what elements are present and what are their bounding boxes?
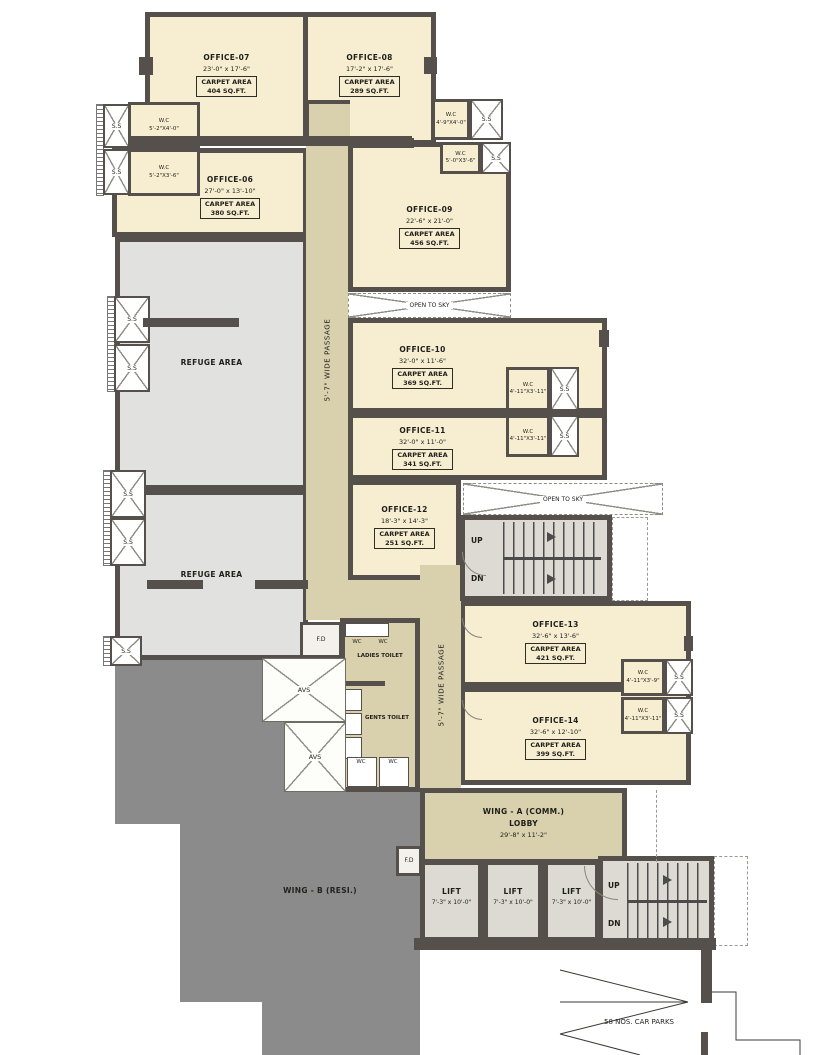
office-13-carpet: CARPET AREA421 SQ.FT.: [525, 643, 585, 665]
office-14-carpet: CARPET AREA399 SQ.FT.: [525, 739, 585, 761]
lift-1: LIFT 7'-3" x 10'-0": [420, 860, 483, 942]
office-11-dims: 32'-0" x 11'-0": [399, 438, 446, 447]
avs-box-2-label: AVS: [307, 753, 324, 761]
office-06-dims: 27'-0" x 13'-10": [204, 187, 255, 196]
open-to-sky-1: OPEN TO SKY: [348, 293, 511, 318]
office-10-name: OFFICE-10: [399, 345, 445, 355]
office-13-name: OFFICE-13: [532, 620, 578, 630]
toilet-block: WC WC LADIES TOILET GENTS TOILET WC WC: [340, 618, 420, 792]
office-12-dims: 18'-3" x 14'-3": [381, 517, 428, 526]
lift-3-dims: 7'-3" x 10'-0": [552, 899, 592, 907]
lift-2: LIFT 7'-3" x 10'-0": [483, 860, 543, 942]
office-14-dims: 32'-6" x 12'-10": [530, 728, 581, 737]
stair-dn-label: DN: [608, 919, 621, 928]
wall-bar: [701, 1032, 708, 1055]
avs-box-1: AVS: [262, 658, 346, 722]
pilaster: [684, 636, 693, 651]
office-06-name: OFFICE-06: [207, 175, 253, 185]
avs-box-1-label: AVS: [296, 686, 313, 694]
fd-duct-2: F.D: [396, 846, 422, 876]
stair-up-label: UP: [471, 536, 483, 545]
ss-shaft: S.S: [110, 518, 146, 566]
ladies-toilet-label: LADIES TOILET: [357, 653, 403, 659]
fd-duct-1: F.D: [300, 622, 342, 658]
ss-shaft: S.S: [114, 344, 150, 392]
office-10-carpet: CARPET AREA369 SQ.FT.: [392, 368, 452, 390]
office-08-carpet: CARPET AREA289 SQ.FT.: [339, 76, 399, 98]
stair-arrow-icon: [547, 574, 556, 584]
office-09-carpet: CARPET AREA456 SQ.FT.: [399, 228, 459, 250]
wing-b-area: [115, 658, 262, 824]
wc-fixture: [345, 689, 362, 711]
wall-bar: [414, 938, 716, 950]
pilaster: [424, 57, 437, 74]
stair-upper-dashed-outline: [612, 517, 648, 601]
lift-1-dims: 7'-3" x 10'-0": [432, 899, 472, 907]
office-14-name: OFFICE-14: [532, 716, 578, 726]
wing-b-area: [262, 790, 420, 824]
lift-2-label: LIFT: [503, 887, 522, 897]
stair-lower-dashed-outline: [714, 856, 748, 946]
office-10-dims: 32'-0" x 11'-6": [399, 357, 446, 366]
wing-a-lobby-line1: WING - A (COMM.): [483, 807, 565, 817]
passage-upper-label-wrap: 5'-7" WIDE PASSAGE: [267, 354, 387, 366]
pilaster: [139, 57, 153, 75]
wing-a-lobby-dims: 29'-8" x 11'-2": [500, 831, 547, 840]
office-07-carpet: CARPET AREA404 SQ.FT.: [196, 76, 256, 98]
wing-b-area: [180, 824, 420, 1002]
lift-3-label: LIFT: [562, 887, 581, 897]
open-to-sky-2: OPEN TO SKY: [463, 483, 663, 515]
wc-office-10: W.C4'-11"X3'-11": [506, 367, 550, 411]
lift-1-label: LIFT: [442, 887, 461, 897]
ss-shaft: S.S: [103, 104, 130, 148]
office-11-carpet: CARPET AREA341 SQ.FT.: [392, 449, 452, 471]
office-12-carpet: CARPET AREA251 SQ.FT.: [374, 528, 434, 550]
office-07-name: OFFICE-07: [203, 53, 249, 63]
wc-office-08: W.C4'-9"X4'-0": [432, 99, 470, 140]
wing-a-lobby-line2: LOBBY: [509, 819, 538, 829]
ss-shaft: S.S: [550, 415, 579, 457]
open-to-sky-2-label: OPEN TO SKY: [540, 496, 586, 503]
stair-arrow-icon: [663, 917, 672, 927]
office-06-carpet: CARPET AREA380 SQ.FT.: [200, 198, 260, 220]
wall-bar: [701, 947, 712, 1003]
office-13-dims: 32'-6" x 13'-6": [532, 632, 579, 641]
open-to-sky-1-label: OPEN TO SKY: [406, 302, 452, 309]
wall-bar: [348, 138, 414, 148]
office-12-name: OFFICE-12: [381, 505, 427, 515]
ss-shaft: S.S: [665, 697, 693, 734]
fd-duct-2-label: F.D: [404, 857, 413, 865]
wc-stall-label: WC: [349, 639, 365, 645]
wc-office-09: W.C5'-0"X3'-6": [440, 142, 481, 174]
wall-stub: [143, 318, 239, 327]
refuge-area-2-label: REFUGE AREA: [181, 570, 243, 580]
ss-shaft: S.S: [550, 367, 579, 411]
wall-stub: [147, 580, 203, 589]
dashed-property-line: [656, 790, 658, 862]
stair-treads: [503, 522, 601, 594]
wall-stub: [255, 580, 308, 589]
pilaster: [599, 330, 609, 347]
fd-duct-1-label: F.D: [316, 636, 325, 644]
sink-counter: [345, 623, 389, 637]
office-09-dims: 22'-6" x 21'-0": [406, 217, 453, 226]
wc-stall-label: WC: [375, 639, 391, 645]
ss-shaft: S.S: [665, 659, 693, 696]
stair-divider: [503, 557, 601, 560]
gents-toilet-label: GENTS TOILET: [363, 715, 411, 721]
wc-stall-label: WC: [383, 759, 403, 765]
lift-2-dims: 7'-3" x 10'-0": [493, 899, 533, 907]
stair-arrow-icon: [663, 875, 672, 885]
ss-shaft: S.S: [470, 99, 503, 140]
ss-shaft: S.S: [103, 149, 130, 195]
wc-office-11: W.C4'-11"X3'-11": [506, 415, 550, 457]
wc-fixture: [345, 737, 362, 759]
stair-arrow-icon: [547, 532, 556, 542]
wc-fixture: [345, 713, 362, 735]
avs-box-2: AVS: [284, 722, 346, 792]
refuge-area-1-label: REFUGE AREA: [181, 358, 243, 368]
wing-b-area: [262, 1002, 420, 1055]
wing-b-label: WING - B (RESI.): [235, 886, 405, 896]
stair-divider: [627, 900, 707, 903]
passage-lower-label: 5'-7" WIDE PASSAGE: [437, 644, 445, 727]
wc-top-left-2: W.C5'-2"X3'-6": [128, 149, 200, 196]
office-11-name: OFFICE-11: [399, 426, 445, 436]
toilet-divider-wall: [345, 681, 385, 686]
floor-plan: REFUGE AREA REFUGE AREA OFFICE-07 23'-0"…: [0, 0, 837, 1055]
ss-shaft: S.S: [481, 142, 511, 174]
wc-office-13: W.C4'-11"X3'-9": [621, 659, 665, 696]
passage-upper-label: 5'-7" WIDE PASSAGE: [323, 319, 331, 402]
ss-shaft: S.S: [110, 470, 146, 518]
ss-shaft: S.S: [110, 636, 142, 666]
car-parks-label: 58 NOS. CAR PARKS: [580, 1018, 698, 1027]
office-09-name: OFFICE-09: [406, 205, 452, 215]
office-08-name: OFFICE-08: [346, 53, 392, 63]
stair-treads: [627, 863, 707, 939]
office-07-dims: 23'-0" x 17'-6": [203, 65, 250, 74]
wc-stall-label: WC: [351, 759, 371, 765]
office-08-dims: 17'-2" x 17'-6": [346, 65, 393, 74]
wing-a-lobby: WING - A (COMM.) LOBBY 29'-8" x 11'-2": [420, 788, 627, 864]
wc-office-14: W.C4'-11"X3'-11": [621, 697, 665, 734]
